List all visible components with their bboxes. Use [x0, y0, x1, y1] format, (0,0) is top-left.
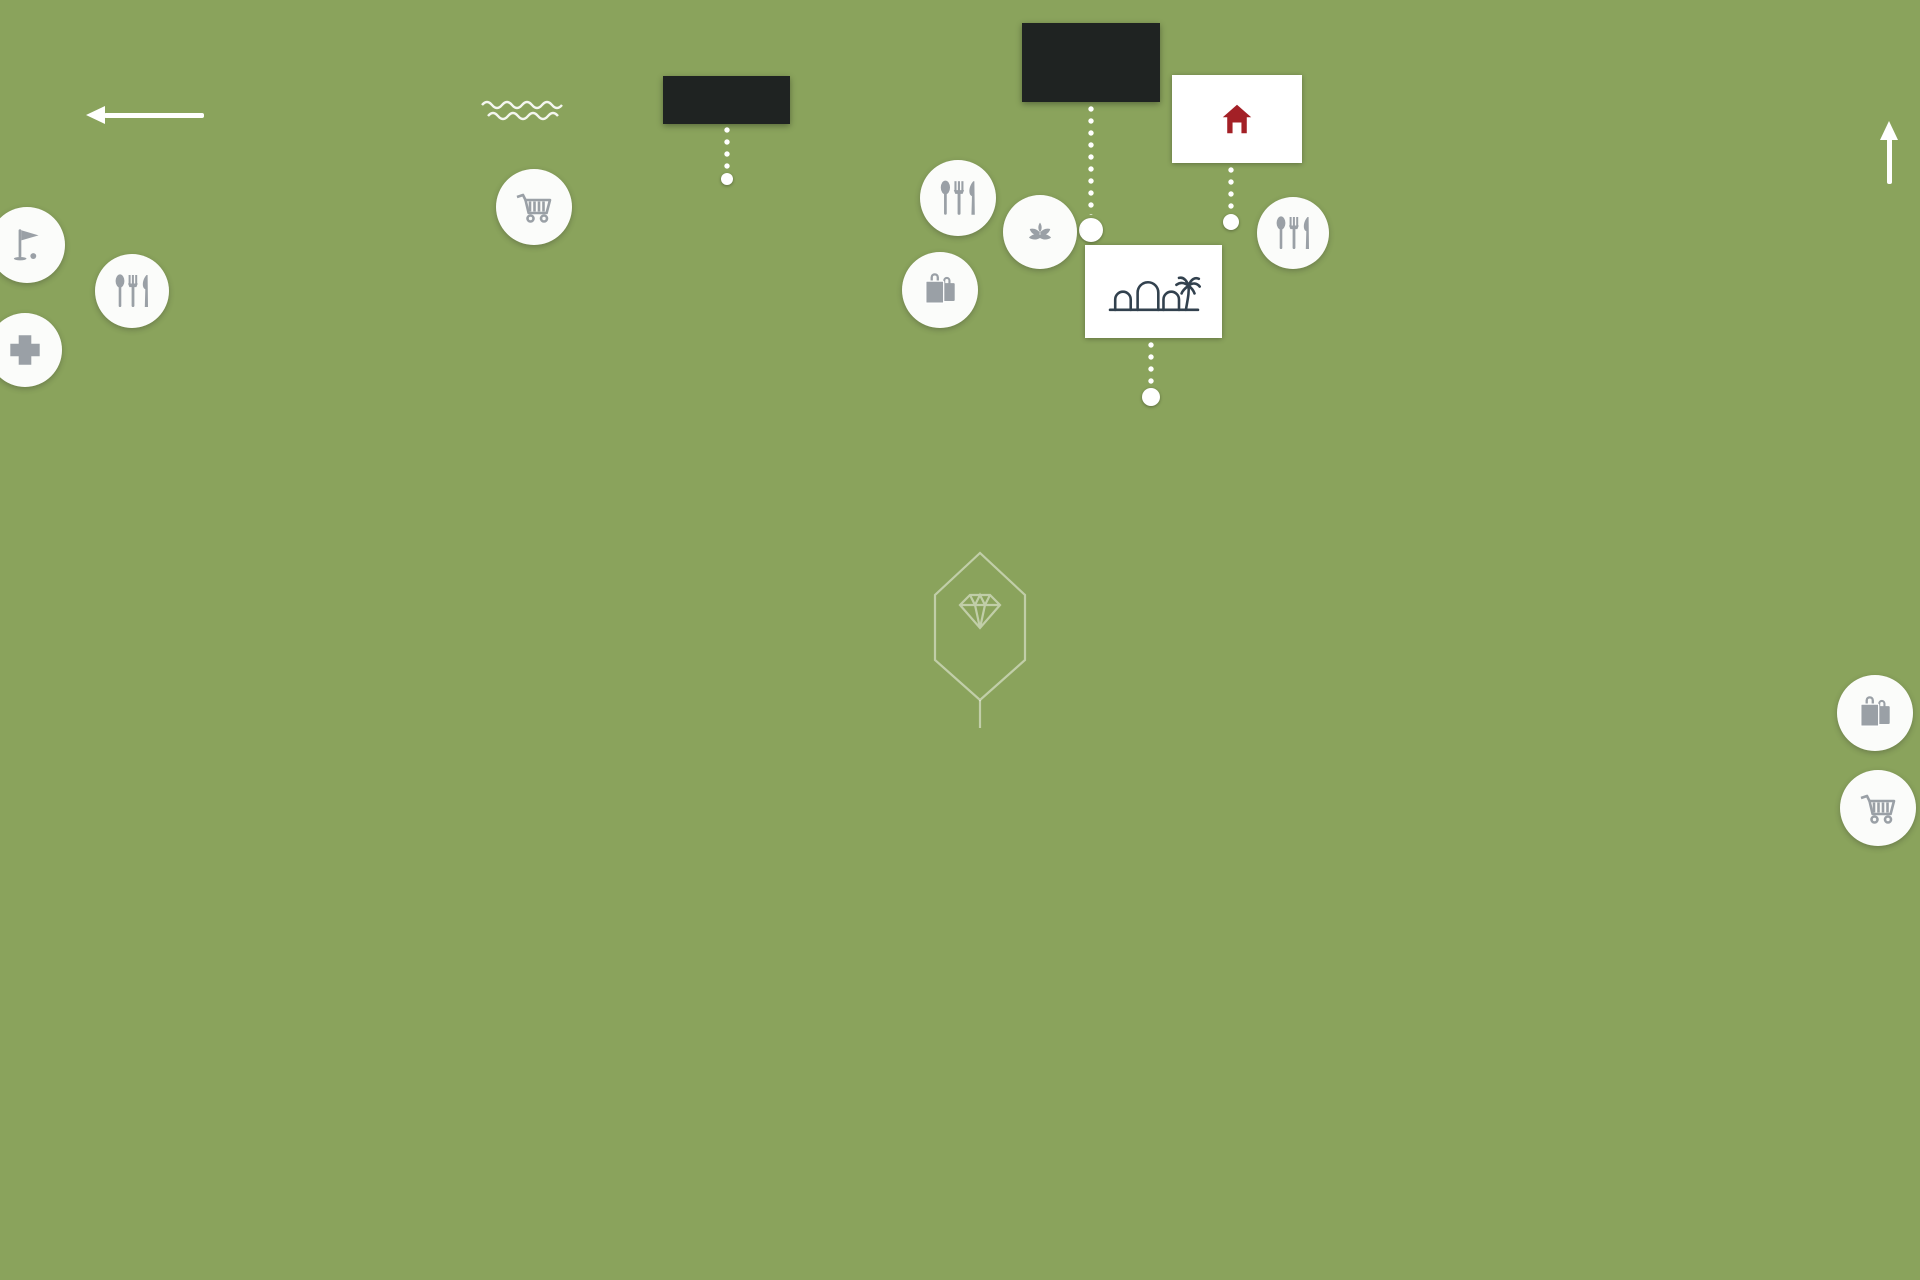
- leader-line-euromarina: [1228, 166, 1234, 210]
- shopping-cart-icon: [1856, 788, 1900, 828]
- spa-icon: [1023, 222, 1057, 242]
- waves-icon: [478, 98, 574, 124]
- amenity-circle: [902, 252, 978, 328]
- leader-dot-hotel: [1079, 218, 1103, 242]
- arrow-west-head-icon: [86, 106, 105, 124]
- leader-line-hotel: [1088, 105, 1094, 215]
- shopping-bags-icon: [919, 269, 961, 311]
- badge-apartments-la-laguna: [663, 76, 790, 124]
- restaurant-icon: [112, 271, 152, 311]
- amenity-circle: [1840, 770, 1916, 846]
- restaurant-icon: [937, 177, 979, 219]
- leader-dot-marella: [1142, 388, 1160, 406]
- restaurant-icon: [1273, 213, 1313, 253]
- arrow-west-icon: [104, 113, 204, 118]
- amenity-circle: [1257, 197, 1329, 269]
- marella-arches-icon: [1102, 265, 1206, 315]
- shopping-cart-icon: [512, 187, 556, 227]
- amenity-circle: [920, 160, 996, 236]
- leader-line-apartments: [724, 126, 730, 172]
- aerial-view-image: [0, 0, 1920, 1280]
- arrow-north-head-icon: [1880, 121, 1898, 140]
- leader-dot-euromarina: [1223, 214, 1239, 230]
- amenity-circle: [496, 169, 572, 245]
- golf-icon: [6, 224, 48, 266]
- badge-hotel-la-laguna: [1022, 23, 1160, 102]
- leader-line-marella: [1148, 341, 1154, 385]
- shopping-bags-icon: [1854, 692, 1896, 734]
- badge-euromarina: [1172, 75, 1302, 163]
- euromarina-house-icon: [1218, 103, 1256, 135]
- amenity-circle: [95, 254, 169, 328]
- leader-dot-apartments: [721, 173, 733, 185]
- amenity-circle: [1837, 675, 1913, 751]
- pharmacy-cross-icon: [4, 329, 46, 371]
- amenity-circle: [1003, 195, 1077, 269]
- arrow-north-icon: [1887, 138, 1892, 184]
- watermark-logo: [925, 550, 1035, 730]
- badge-marella-garden: [1085, 245, 1222, 338]
